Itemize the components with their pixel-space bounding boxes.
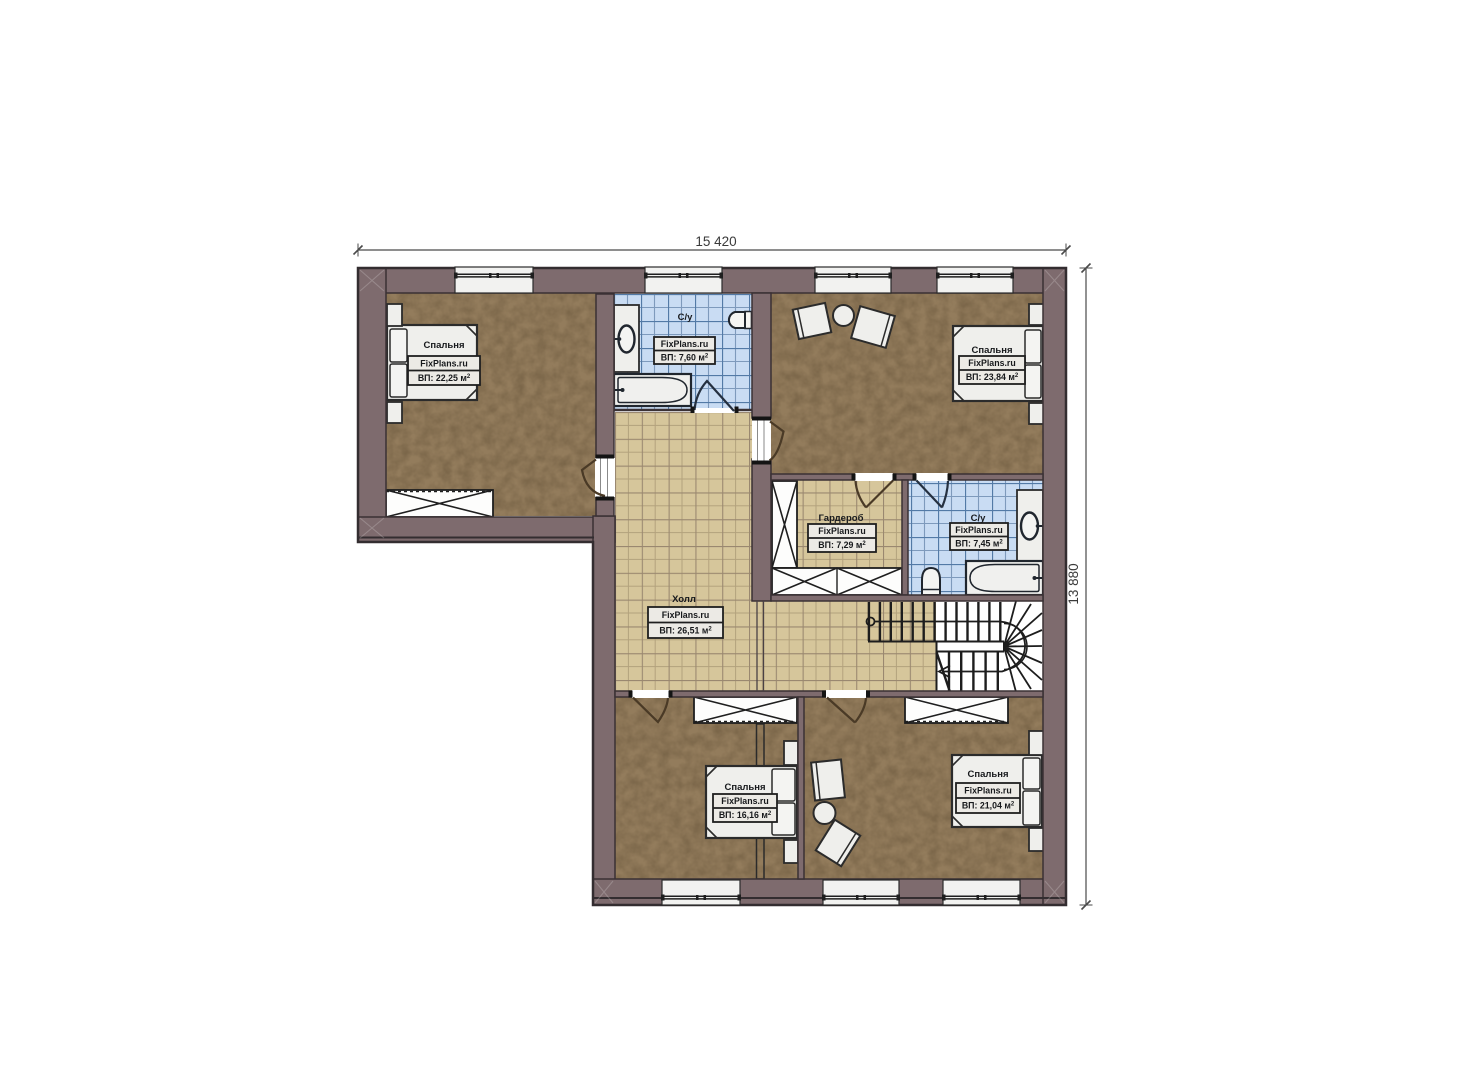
svg-text:ВП: 7,60 м2: ВП: 7,60 м2 — [661, 352, 709, 362]
svg-text:ВП: 23,84 м2: ВП: 23,84 м2 — [966, 372, 1019, 382]
svg-text:Спальня: Спальня — [967, 769, 1008, 780]
svg-text:FixPlans.ru: FixPlans.ru — [661, 339, 708, 349]
svg-text:15 420: 15 420 — [695, 234, 736, 249]
svg-text:ВП: 7,45 м2: ВП: 7,45 м2 — [955, 538, 1003, 548]
svg-text:FixPlans.ru: FixPlans.ru — [420, 358, 467, 368]
svg-text:ВП: 22,25 м2: ВП: 22,25 м2 — [418, 373, 471, 383]
svg-text:Спальня: Спальня — [724, 782, 765, 793]
svg-text:FixPlans.ru: FixPlans.ru — [968, 358, 1015, 368]
svg-text:Гардероб: Гардероб — [819, 513, 864, 524]
svg-text:FixPlans.ru: FixPlans.ru — [662, 610, 709, 620]
svg-text:FixPlans.ru: FixPlans.ru — [721, 796, 768, 806]
svg-text:FixPlans.ru: FixPlans.ru — [964, 786, 1011, 796]
svg-text:13 880: 13 880 — [1066, 563, 1081, 604]
svg-text:ВП: 16,16 м2: ВП: 16,16 м2 — [719, 810, 772, 820]
svg-text:FixPlans.ru: FixPlans.ru — [818, 526, 865, 536]
svg-text:ВП: 26,51 м2: ВП: 26,51 м2 — [659, 625, 712, 635]
svg-text:Холл: Холл — [672, 594, 696, 605]
svg-text:ВП: 21,04 м2: ВП: 21,04 м2 — [962, 801, 1015, 811]
svg-text:Спальня: Спальня — [971, 345, 1012, 356]
svg-text:FixPlans.ru: FixPlans.ru — [955, 525, 1002, 535]
svg-text:Спальня: Спальня — [423, 340, 464, 351]
svg-text:ВП: 7,29 м2: ВП: 7,29 м2 — [818, 540, 866, 550]
svg-text:С/у: С/у — [678, 312, 694, 323]
